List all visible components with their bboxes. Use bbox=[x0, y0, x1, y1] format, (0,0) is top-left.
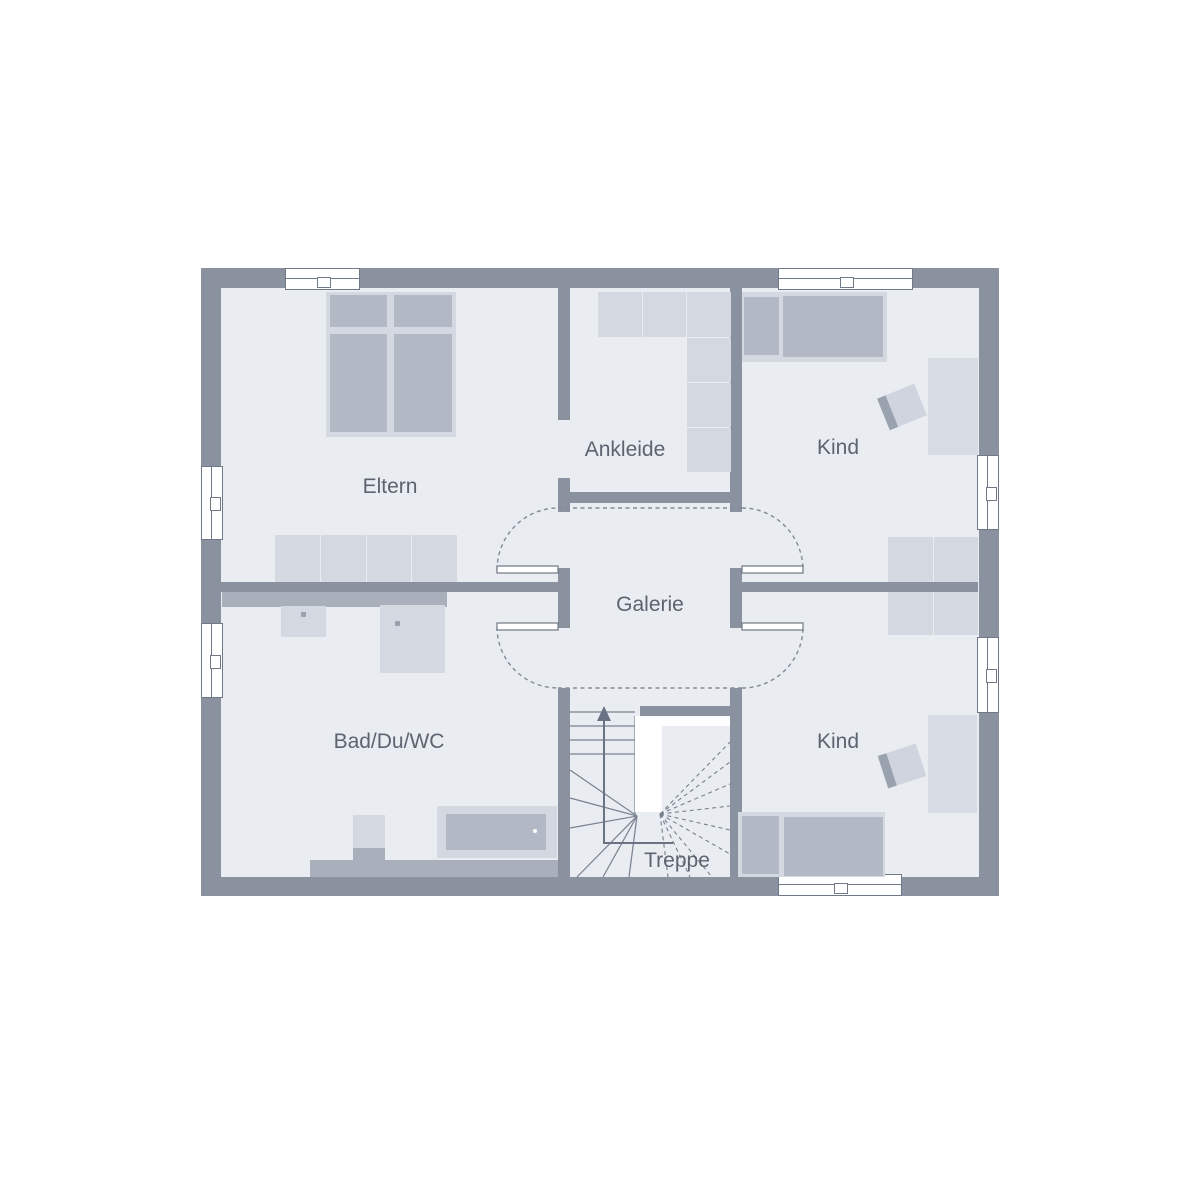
room-label-bad-du-wc: Bad/Du/WC bbox=[334, 730, 445, 754]
stair-landing-edge bbox=[662, 716, 730, 726]
room-label-kind-oben: Kind bbox=[817, 436, 859, 460]
room-label-eltern: Eltern bbox=[363, 475, 418, 499]
door-leaf-kind-top bbox=[742, 566, 803, 573]
room-label-treppe: Treppe bbox=[644, 849, 710, 873]
door-leaf-eltern bbox=[497, 566, 558, 573]
stair-void bbox=[635, 716, 662, 812]
door-leaf-bad bbox=[497, 623, 558, 630]
room-label-kind-unten: Kind bbox=[817, 730, 859, 754]
room-label-ankleide: Ankleide bbox=[585, 438, 666, 462]
floorplan-page: Eltern Ankleide Kind Galerie Bad/Du/WC K… bbox=[0, 0, 1200, 1200]
doors-and-stairs-overlay bbox=[201, 268, 999, 896]
room-label-galerie: Galerie bbox=[616, 593, 684, 617]
floor-plan: Eltern Ankleide Kind Galerie Bad/Du/WC K… bbox=[201, 268, 999, 896]
door-leaf-kind-bottom bbox=[742, 623, 803, 630]
